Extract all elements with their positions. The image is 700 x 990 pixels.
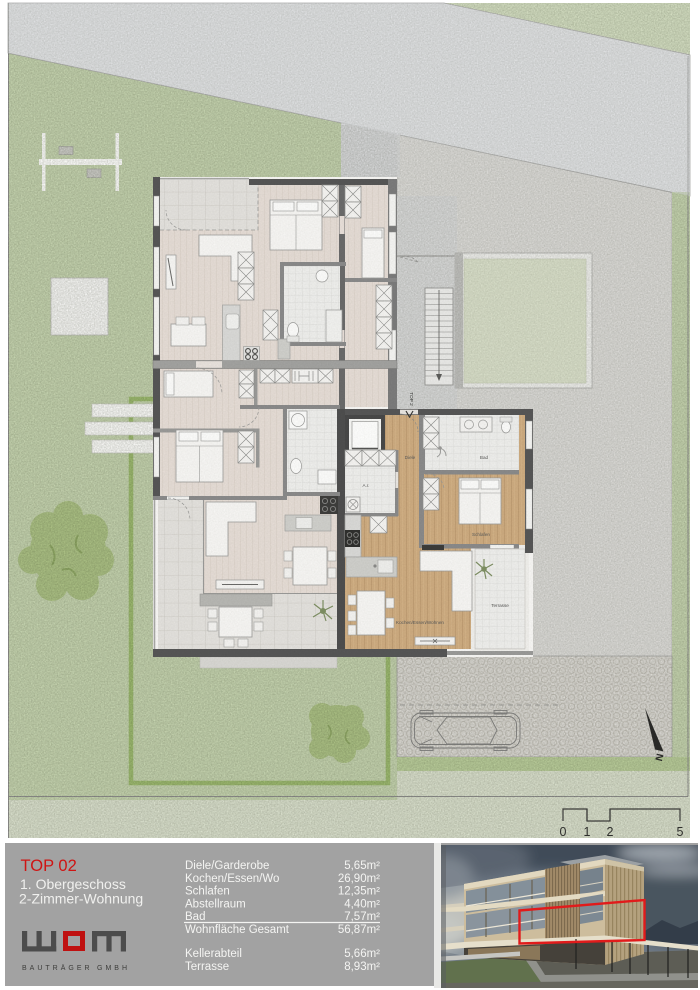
svg-text:7,57m²: 7,57m² xyxy=(344,911,380,923)
svg-text:2: 2 xyxy=(607,825,614,839)
svg-text:1: 1 xyxy=(584,825,591,839)
svg-text:TOP 02: TOP 02 xyxy=(21,857,77,875)
svg-text:Terrasse: Terrasse xyxy=(185,961,229,973)
svg-text:BAUTRÄGER: BAUTRÄGER xyxy=(22,964,93,972)
svg-text:Abstellraum: Abstellraum xyxy=(185,898,246,910)
svg-text:Kellerabteil: Kellerabteil xyxy=(185,948,242,960)
svg-text:Wohnfläche Gesamt: Wohnfläche Gesamt xyxy=(185,924,290,936)
svg-text:56,87m²: 56,87m² xyxy=(338,924,380,936)
svg-text:5: 5 xyxy=(677,825,684,839)
svg-text:4,40m²: 4,40m² xyxy=(344,898,380,910)
svg-text:5,65m²: 5,65m² xyxy=(344,860,380,872)
svg-text:2-Zimmer-Wohnung: 2-Zimmer-Wohnung xyxy=(19,891,143,907)
svg-text:Schlafen: Schlafen xyxy=(185,886,230,898)
svg-text:Kochen/Essen/Wo: Kochen/Essen/Wo xyxy=(185,873,279,885)
svg-text:Diele/Garderobe: Diele/Garderobe xyxy=(185,860,269,872)
svg-text:8,93m²: 8,93m² xyxy=(344,961,380,973)
svg-text:12,35m²: 12,35m² xyxy=(338,886,380,898)
svg-text:26,90m²: 26,90m² xyxy=(338,873,380,885)
svg-text:GMBH: GMBH xyxy=(97,965,130,972)
svg-text:5,66m²: 5,66m² xyxy=(344,948,380,960)
svg-text:0: 0 xyxy=(560,825,567,839)
svg-text:Bad: Bad xyxy=(185,911,205,923)
